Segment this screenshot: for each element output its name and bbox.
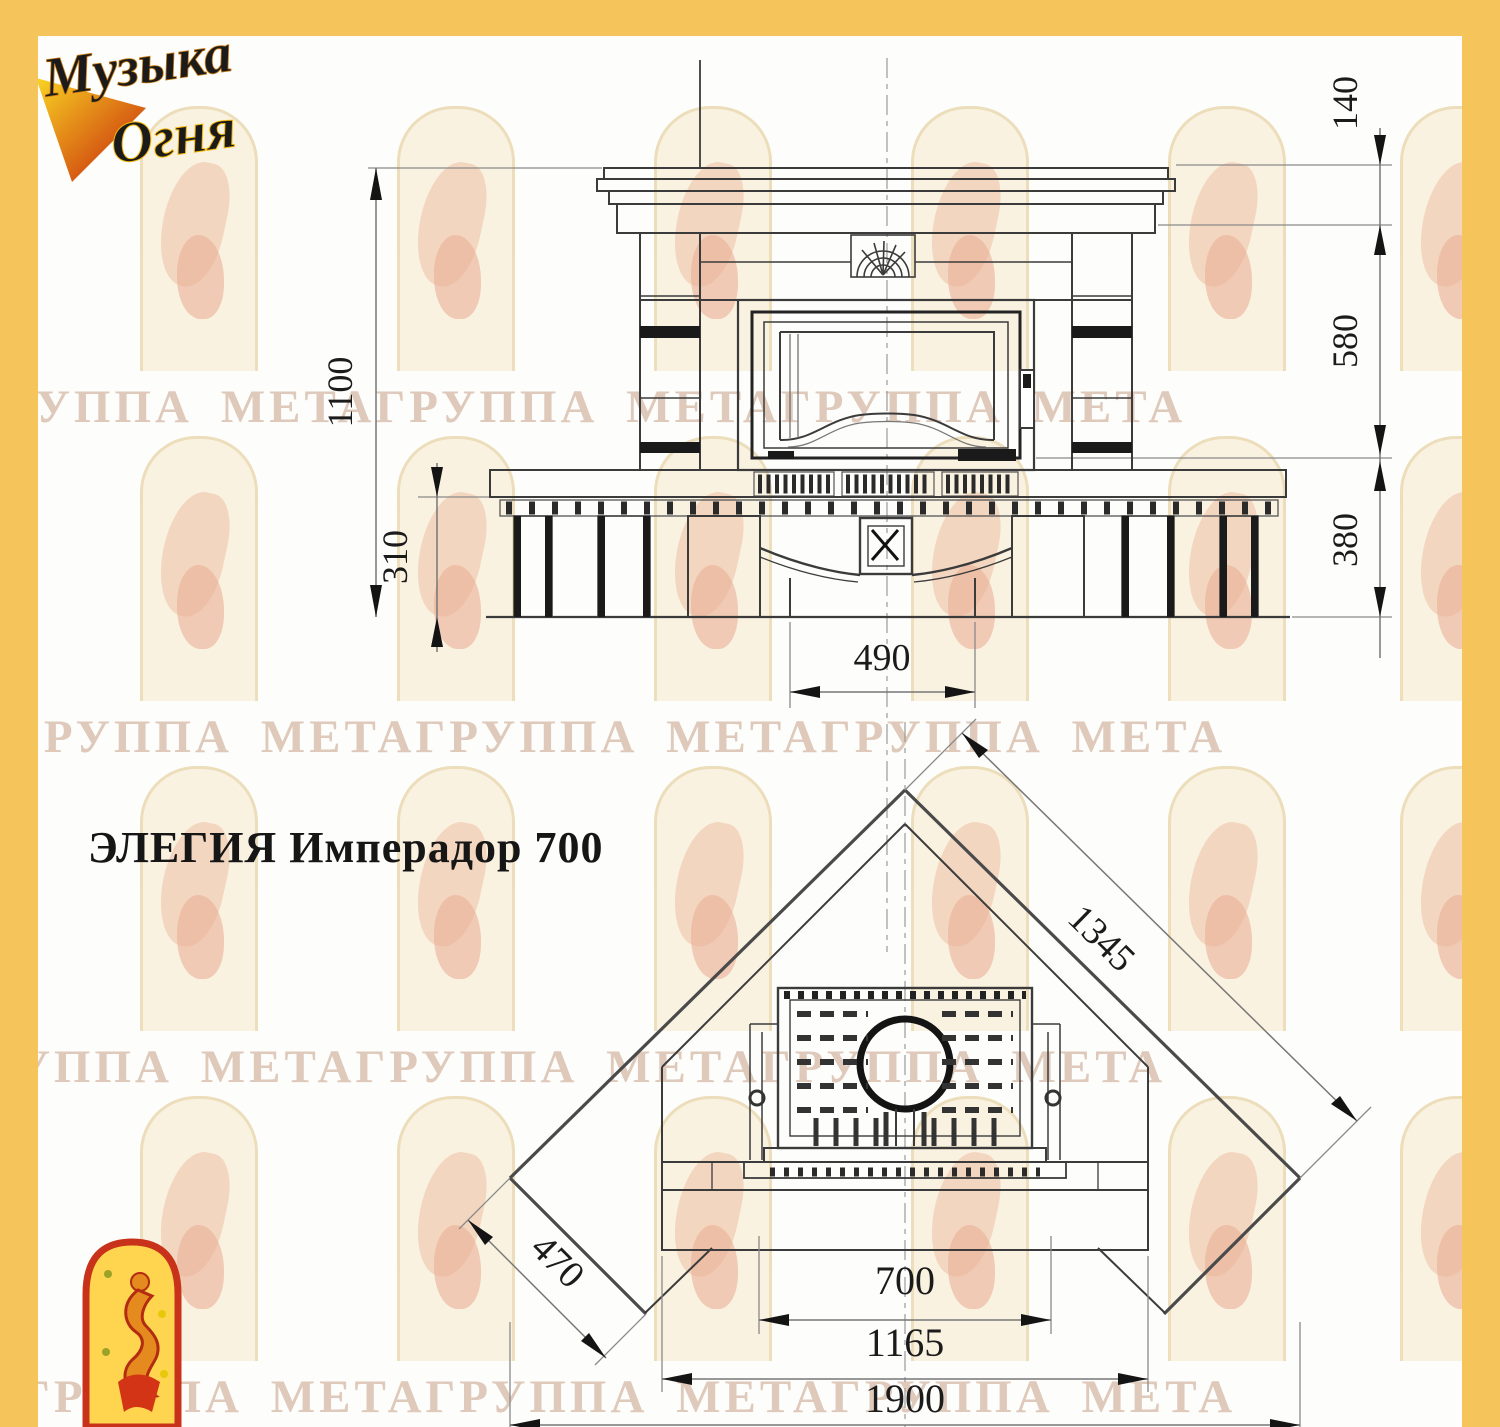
dim-label-310: 310	[375, 530, 415, 584]
dim-label-380: 380	[1325, 513, 1365, 567]
dim-label-490: 490	[854, 637, 911, 679]
fireplace-technical-drawing: 1100 310 140 580 380 490	[0, 0, 1500, 1427]
model-title: ЭЛЕГИЯ Имперадор 700	[88, 822, 603, 873]
bench-slab	[490, 470, 1286, 497]
corner-walls	[510, 790, 1300, 1314]
door-glass	[780, 332, 994, 440]
dim-label-1165: 1165	[866, 1320, 945, 1365]
firebird-arch-logo	[78, 1232, 188, 1427]
dim-label-1100: 1100	[320, 357, 360, 428]
dim-label-1345: 1345	[1060, 897, 1144, 980]
dim-label-700: 700	[875, 1258, 935, 1303]
front-dimension-labels: 1100 310 140 580 380 490	[320, 76, 1365, 679]
dim-label-140: 140	[1325, 76, 1365, 130]
dim-label-580: 580	[1325, 314, 1365, 368]
frame-band-top	[0, 0, 1500, 36]
pedestal	[688, 516, 1084, 617]
mantel-crown	[597, 168, 1175, 233]
plan-dimension-labels: 1345 470 700 1165 1900	[522, 897, 1143, 1421]
front-view: 1100 310 140 580 380 490	[320, 58, 1392, 952]
dim-label-1900: 1900	[865, 1376, 945, 1421]
front-dimension-arrows	[370, 135, 1386, 698]
page: ГРУППА МЕТАГРУППА МЕТАГРУППА МЕТАГРУППА …	[0, 0, 1500, 1427]
frame-band-left	[0, 0, 38, 1427]
front-extension-lines	[368, 165, 1392, 708]
front-dimension-lines	[376, 128, 1380, 692]
fan-ornament	[851, 235, 915, 277]
dentil-band	[500, 500, 1278, 516]
frame-band-right	[1462, 0, 1500, 1427]
firebox-front	[738, 300, 1034, 470]
